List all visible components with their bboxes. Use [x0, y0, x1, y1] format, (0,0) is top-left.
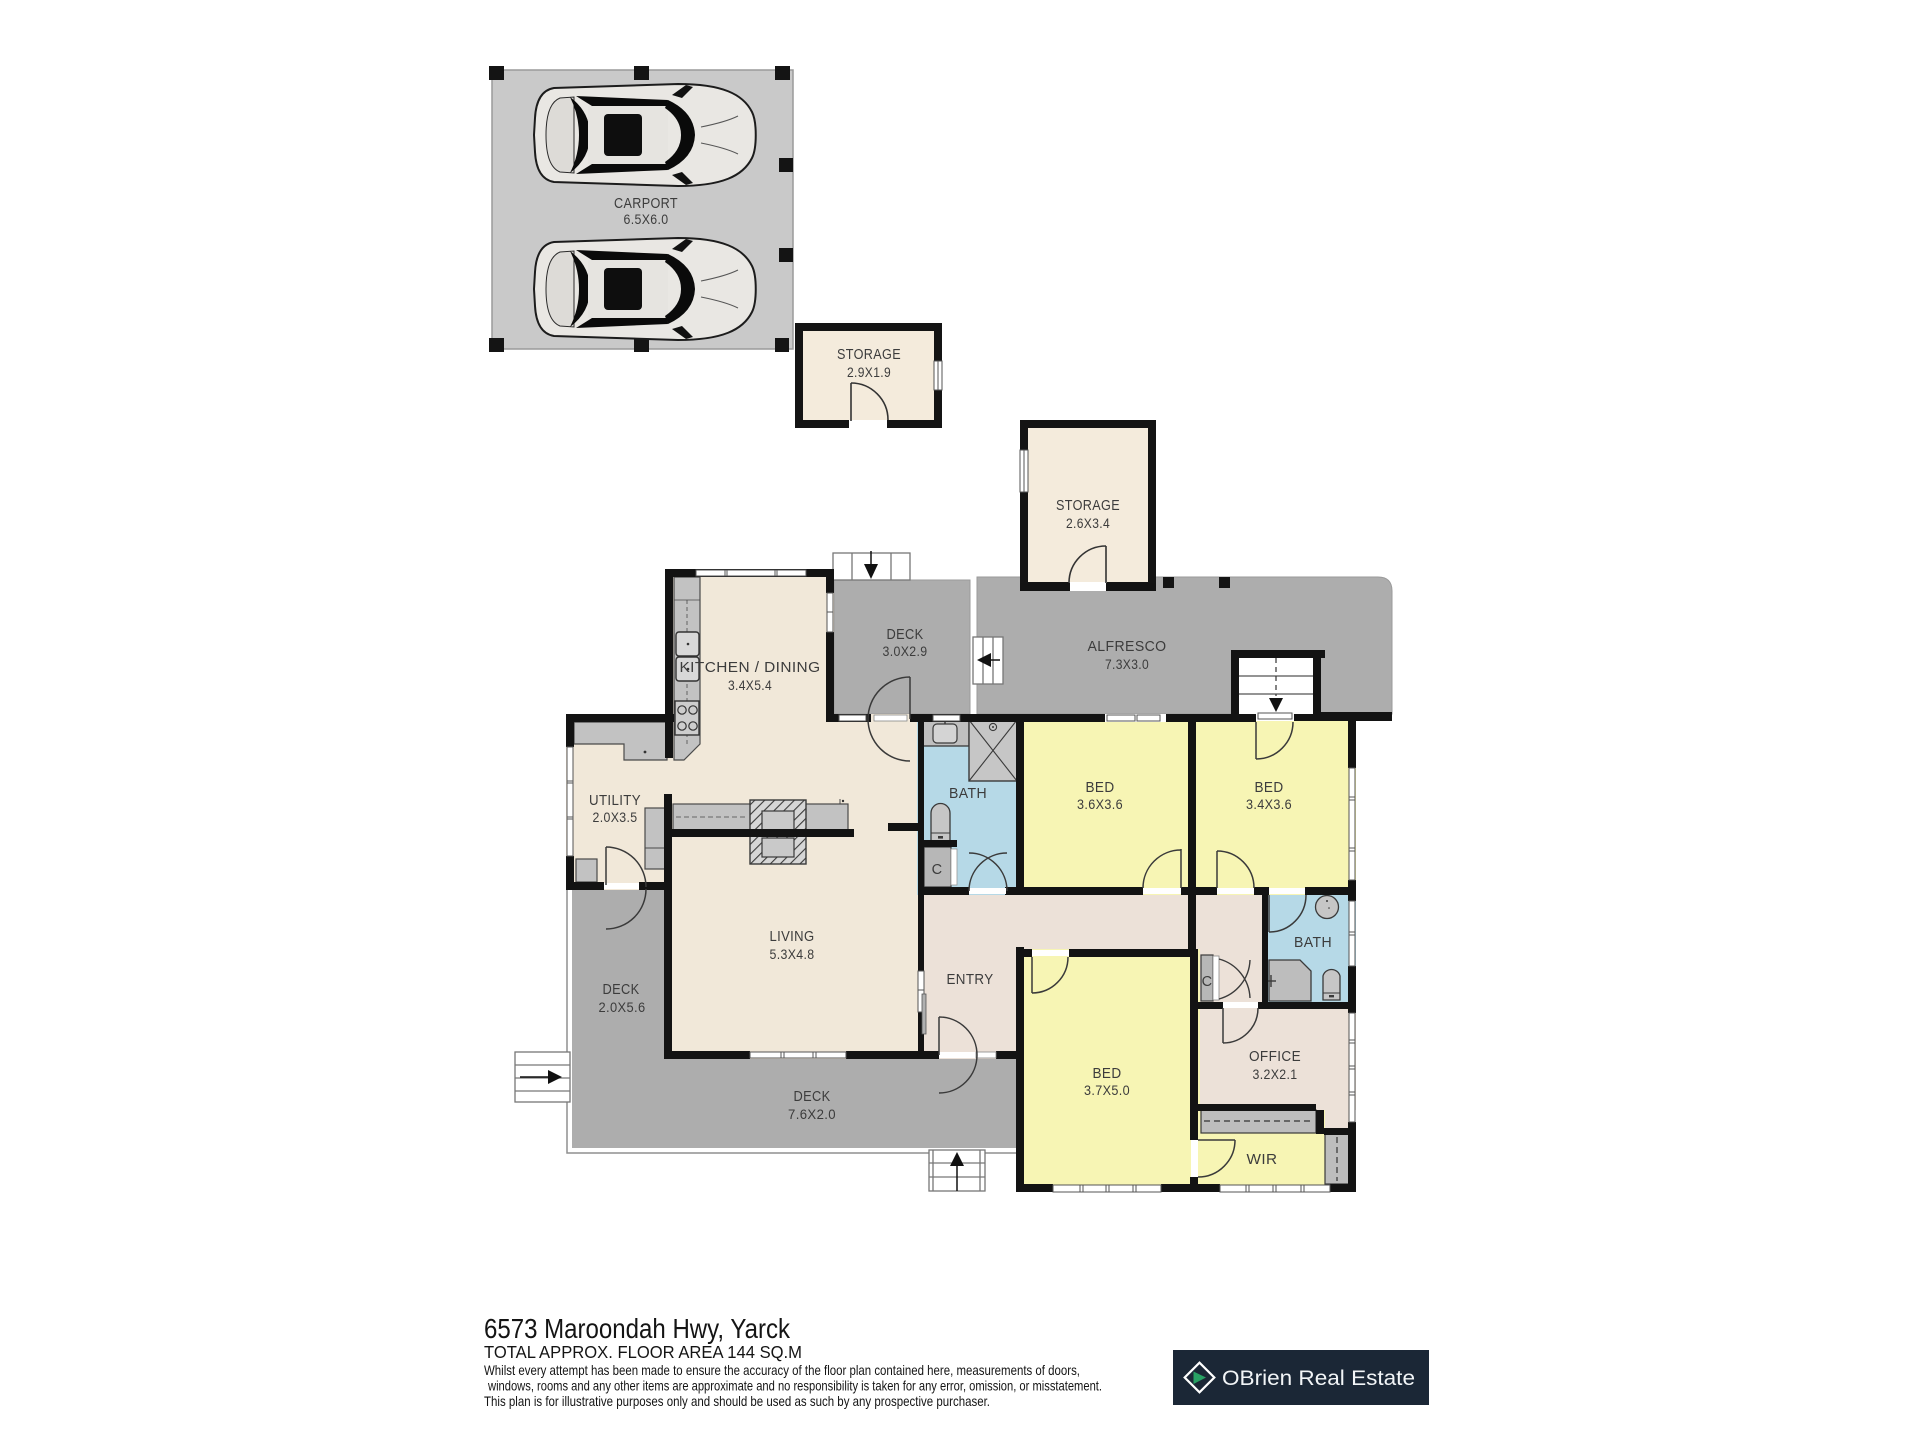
svg-text:3.2X2.1: 3.2X2.1 [1253, 1066, 1298, 1082]
svg-text:STORAGE: STORAGE [1056, 498, 1120, 514]
svg-text:BATH: BATH [1294, 935, 1332, 951]
svg-text:7.6X2.0: 7.6X2.0 [788, 1106, 836, 1122]
svg-text:BED: BED [1086, 780, 1115, 796]
svg-text:3.6X3.6: 3.6X3.6 [1077, 796, 1123, 812]
svg-text:ALFRESCO: ALFRESCO [1088, 639, 1167, 655]
svg-text:WIR: WIR [1247, 1152, 1278, 1168]
svg-text:UTILITY: UTILITY [589, 793, 641, 809]
svg-text:C: C [1202, 974, 1213, 990]
svg-text:BED: BED [1255, 780, 1284, 796]
svg-text:windows, rooms and any other i: windows, rooms and any other items are a… [487, 1378, 1102, 1394]
svg-text:DECK: DECK [887, 627, 924, 643]
svg-text:7.3X3.0: 7.3X3.0 [1105, 656, 1149, 672]
svg-text:OBrien Real Estate: OBrien Real Estate [1222, 1367, 1415, 1390]
svg-text:2.6X3.4: 2.6X3.4 [1066, 515, 1110, 531]
svg-text:6.5X6.0: 6.5X6.0 [624, 211, 669, 227]
svg-text:DECK: DECK [603, 982, 640, 998]
svg-text:3.0X2.9: 3.0X2.9 [883, 643, 928, 659]
svg-text:TOTAL APPROX. FLOOR AREA 144 S: TOTAL APPROX. FLOOR AREA 144 SQ.M [484, 1342, 802, 1362]
svg-text:ENTRY: ENTRY [947, 972, 994, 988]
svg-text:2.0X3.5: 2.0X3.5 [593, 809, 638, 825]
svg-text:6573 Maroondah Hwy, Yarck: 6573 Maroondah Hwy, Yarck [484, 1313, 791, 1344]
svg-text:CARPORT: CARPORT [614, 196, 678, 212]
svg-text:3.4X5.4: 3.4X5.4 [728, 677, 772, 693]
svg-text:3.7X5.0: 3.7X5.0 [1084, 1082, 1130, 1098]
svg-text:C: C [932, 862, 943, 878]
svg-text:Whilst every attempt has been: Whilst every attempt has been made to en… [484, 1362, 1080, 1378]
svg-text:This plan is for illustrative: This plan is for illustrative purposes o… [484, 1393, 990, 1409]
svg-text:OFFICE: OFFICE [1249, 1049, 1301, 1065]
svg-text:2.9X1.9: 2.9X1.9 [847, 364, 891, 380]
svg-text:BED: BED [1093, 1066, 1122, 1082]
svg-text:5.3X4.8: 5.3X4.8 [770, 946, 815, 962]
svg-text:3.4X3.6: 3.4X3.6 [1246, 796, 1292, 812]
svg-text:BATH: BATH [949, 786, 987, 802]
svg-text:2.0X5.6: 2.0X5.6 [599, 999, 646, 1015]
svg-text:DECK: DECK [794, 1089, 831, 1105]
svg-text:LIVING: LIVING [770, 929, 815, 945]
svg-text:KITCHEN / DINING: KITCHEN / DINING [680, 660, 821, 676]
svg-text:STORAGE: STORAGE [837, 347, 901, 363]
